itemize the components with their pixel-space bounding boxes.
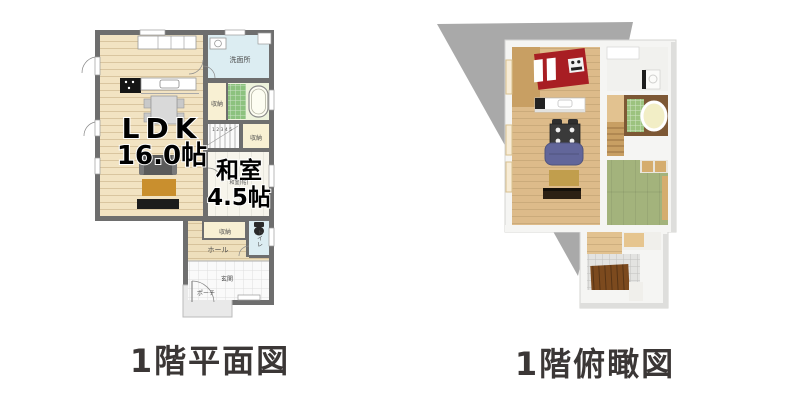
bathtub-3d — [642, 102, 666, 130]
closet-washitsu-label: 収納 — [219, 228, 231, 236]
toilet-icon — [254, 222, 264, 227]
tv-board — [137, 199, 179, 209]
shoji-screen — [662, 176, 668, 220]
genkan-label: 玄関 — [221, 275, 233, 283]
washing-machine — [645, 70, 660, 89]
wall-bath-tatami — [607, 156, 668, 160]
center-wall-3d — [600, 47, 607, 225]
wall-main-bottom — [505, 225, 676, 232]
upper-cabinets — [138, 36, 196, 49]
bathroom — [227, 83, 269, 120]
sink — [160, 80, 179, 88]
washitsu-size-label: 4.5帖 — [207, 185, 271, 211]
porch-label: ポーチ — [197, 289, 215, 297]
toilet-label: トイレ — [256, 229, 263, 247]
living-furniture-3d — [543, 143, 583, 199]
stairs-3d — [607, 95, 624, 160]
overhead-view-3d — [437, 22, 676, 308]
washroom-3d — [607, 47, 668, 91]
stove — [120, 78, 141, 93]
bathroom-3d — [624, 95, 668, 136]
hall-label: ホール — [208, 246, 229, 254]
left-caption: 1階平面図 — [78, 336, 342, 382]
senmenjo-label: 洗面所 — [230, 55, 251, 64]
page: 洗面所 収納 収納 1 2 3 4 5 収納 トイレ ホール 玄関 ポーチ LD… — [0, 0, 800, 400]
rug — [142, 179, 176, 196]
tatami-room-3d — [607, 160, 668, 225]
stair-numbers: 1 2 3 4 5 — [212, 127, 232, 133]
wall-washroom-bath — [607, 91, 668, 95]
closet-bath-label: 収納 — [211, 100, 223, 108]
windows-3d — [506, 60, 512, 192]
floor-plan-2d: 洗面所 収納 収納 1 2 3 4 5 収納 トイレ ホール 玄関 ポーチ LD… — [82, 30, 274, 317]
closet-stairs-label: 収納 — [250, 134, 262, 142]
entrance-section-3d — [587, 232, 661, 301]
rug-3d — [549, 170, 579, 186]
right-caption: 1階俯瞰図 — [458, 339, 732, 385]
counter-3d — [535, 98, 585, 112]
kitchen-3d — [531, 48, 589, 90]
ldk-size-label: 16.0帖 — [117, 141, 207, 171]
stove-3d — [568, 57, 585, 73]
